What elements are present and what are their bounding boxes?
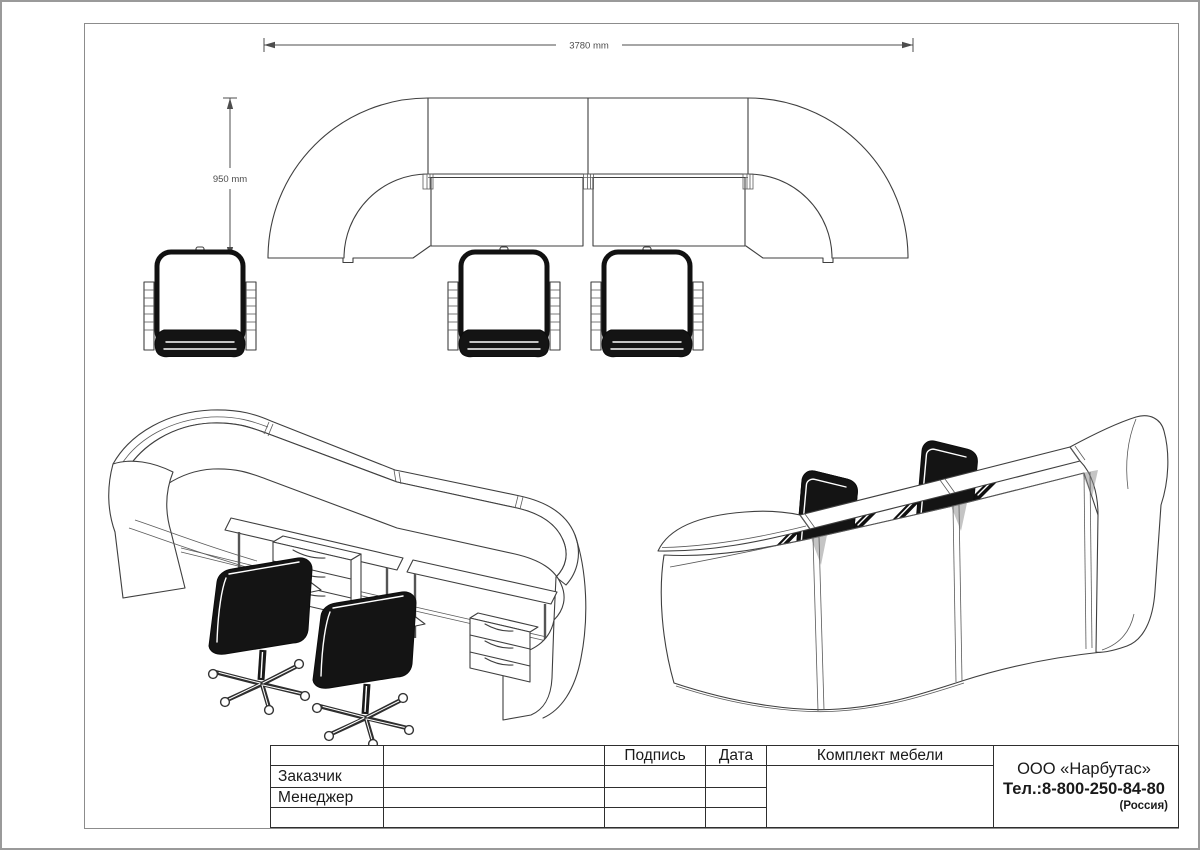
title-block-cell <box>271 746 384 766</box>
customer-signature-cell <box>605 766 706 788</box>
width-dimension-label: 3780 mm <box>569 41 609 52</box>
manager-row-label: Менеджер <box>271 788 384 808</box>
manager-value-cell <box>384 788 605 808</box>
drawer-pedestal <box>470 613 538 682</box>
empty-signature-cell <box>605 808 706 828</box>
office-chair-iso <box>209 558 425 749</box>
company-info: ООО «Нарбутас» Тел.:8-800-250-84-80 (Рос… <box>994 746 1179 828</box>
customer-row-label: Заказчик <box>271 766 384 788</box>
company-phone: Тел.:8-800-250-84-80 <box>996 779 1172 799</box>
plan-view-drawing: 3780 mm 950 mm <box>200 28 940 380</box>
empty-value-cell <box>384 808 605 828</box>
joint-bracket <box>584 174 594 189</box>
customer-date-cell <box>706 766 767 788</box>
office-chair-top-view <box>144 247 703 357</box>
counter-plan-outline <box>268 98 908 263</box>
document-title-body-cell <box>767 766 994 828</box>
isometric-view-right <box>650 395 1180 735</box>
manager-date-cell <box>706 788 767 808</box>
company-country: (Россия) <box>996 799 1172 813</box>
empty-date-cell <box>706 808 767 828</box>
height-dimension-label: 950 mm <box>213 174 247 185</box>
title-block: Подпись Дата Комплект мебели ООО «Нарбут… <box>270 745 1179 828</box>
isometric-view-left <box>105 400 625 735</box>
customer-value-cell <box>384 766 605 788</box>
signature-column-header: Подпись <box>605 746 706 766</box>
empty-row-label <box>271 808 384 828</box>
title-block-cell <box>384 746 605 766</box>
document-title: Комплект мебели <box>767 746 994 766</box>
company-name: ООО «Нарбутас» <box>996 760 1172 779</box>
width-dimension: 3780 mm <box>264 38 913 52</box>
date-column-header: Дата <box>706 746 767 766</box>
drawing-sheet: 3780 mm 950 mm <box>0 0 1200 850</box>
manager-signature-cell <box>605 788 706 808</box>
height-dimension: 950 mm <box>213 98 247 258</box>
